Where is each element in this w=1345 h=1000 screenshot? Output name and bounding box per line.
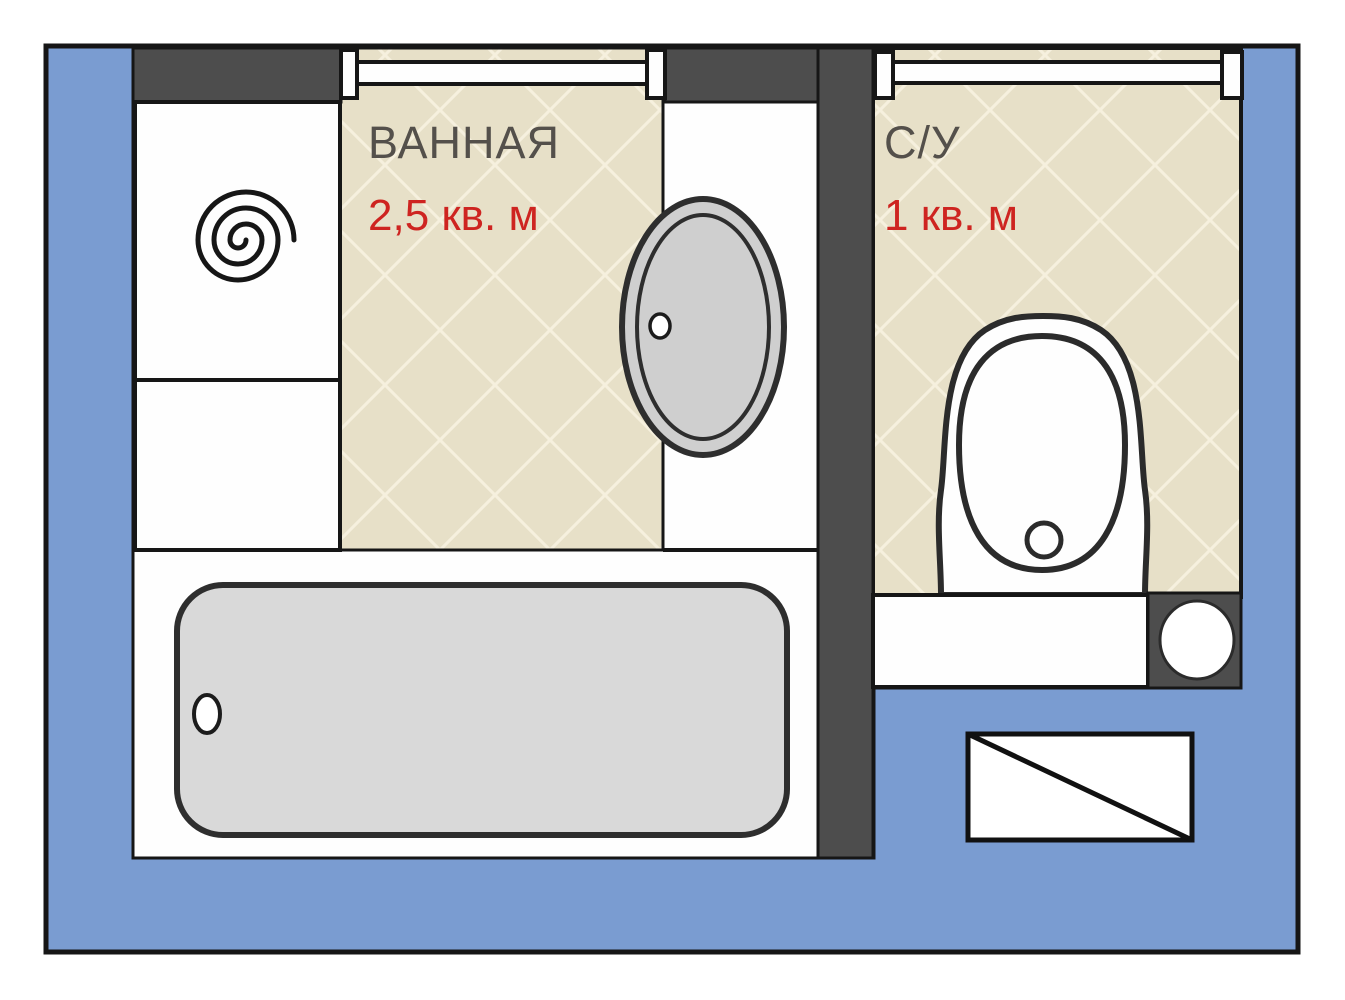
bathtub-body xyxy=(177,585,787,835)
pipe-riser-circle xyxy=(1160,601,1234,679)
legend-box xyxy=(968,734,1192,840)
door-wc-jamb-left xyxy=(875,52,893,98)
pipe-riser xyxy=(1148,593,1241,688)
bathroom-name-label: ВАННАЯ xyxy=(368,117,560,168)
floor-plan-svg: ВАННАЯ 2,5 кв. м С/У 1 кв. м xyxy=(0,0,1345,1000)
door-bathroom-jamb-left xyxy=(341,50,357,98)
toilet-flush-button xyxy=(1027,523,1061,557)
door-wc-jamb-right xyxy=(1222,52,1242,98)
sink xyxy=(622,199,784,455)
wall-top-left xyxy=(133,48,341,102)
door-bathroom-jamb-right xyxy=(647,50,665,98)
washing-machine xyxy=(135,102,340,380)
sink-rim xyxy=(622,199,784,455)
wc-area-label: 1 кв. м xyxy=(884,191,1018,240)
toilet xyxy=(939,316,1147,595)
storage-box xyxy=(135,380,340,550)
door-bathroom-leaf xyxy=(349,62,655,84)
bathtub-drain xyxy=(194,695,220,733)
sink-drain xyxy=(650,314,670,338)
door-wc-leaf xyxy=(891,62,1224,83)
bathroom-area-label: 2,5 кв. м xyxy=(368,191,539,240)
wc-name-label: С/У xyxy=(884,117,961,168)
bathtub xyxy=(177,585,787,835)
wall-divider xyxy=(818,48,873,858)
floor-plan-canvas: ВАННАЯ 2,5 кв. м С/У 1 кв. м xyxy=(0,0,1345,1000)
cistern-shelf xyxy=(873,595,1148,687)
